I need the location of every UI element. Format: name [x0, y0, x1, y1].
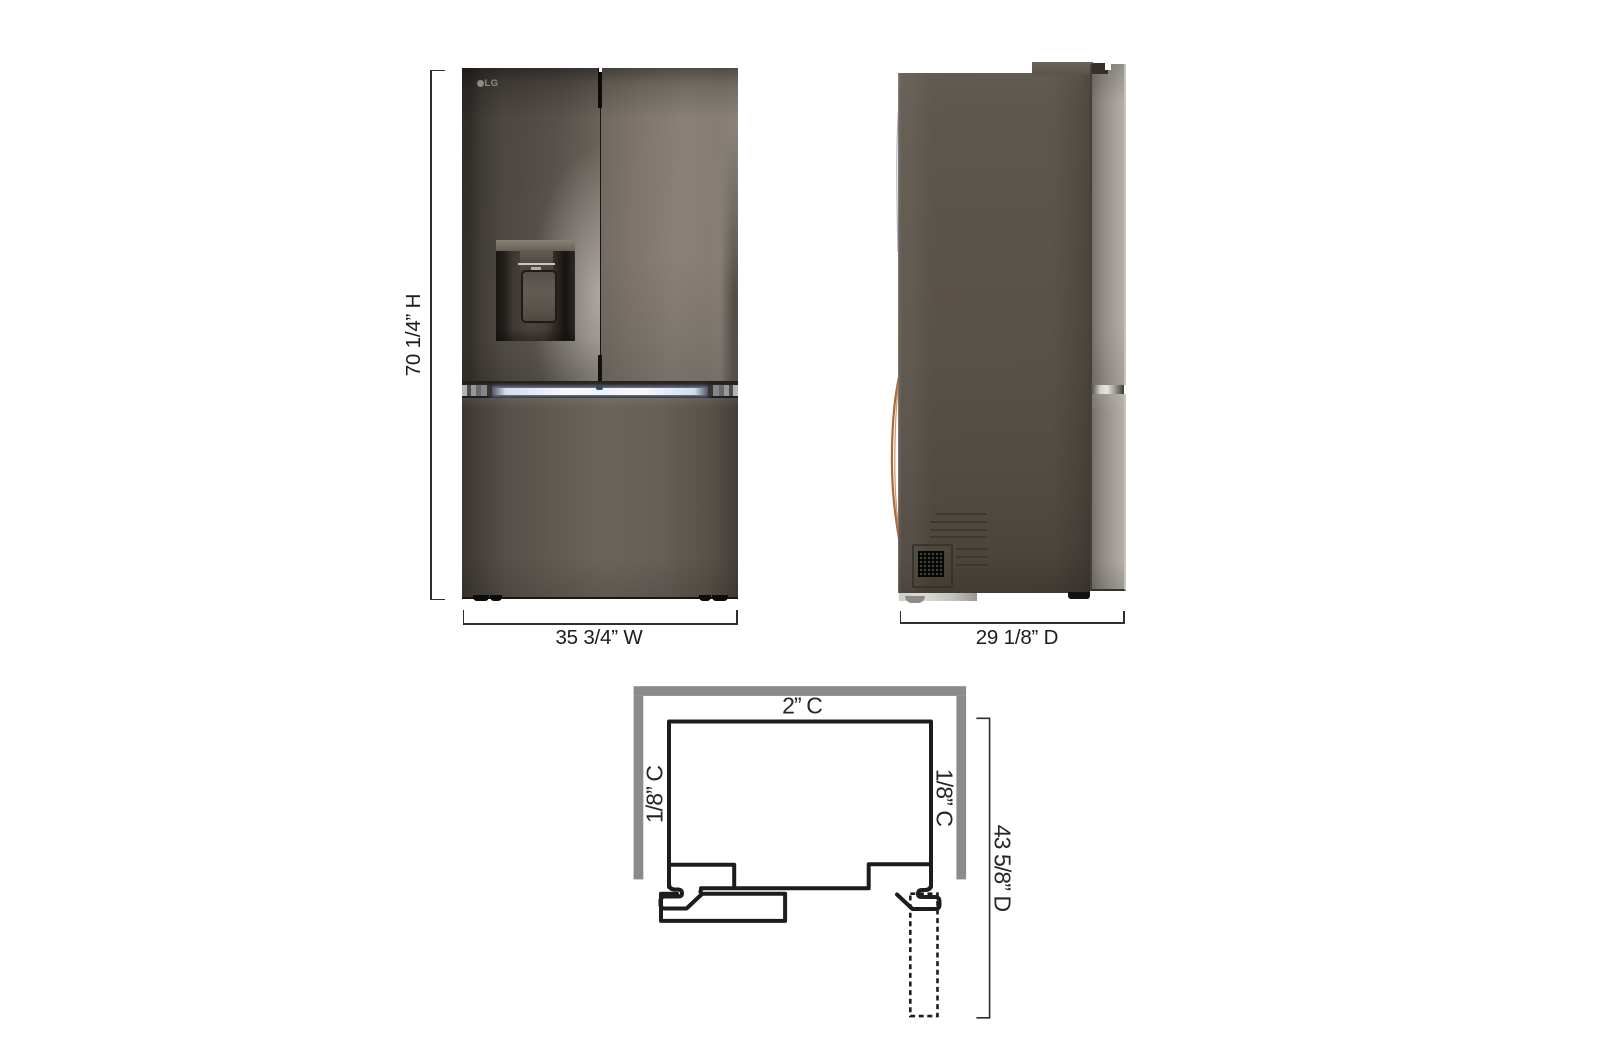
- svg-text:43 5/8” D: 43 5/8” D: [990, 825, 1016, 912]
- svg-text:2” C: 2” C: [782, 693, 822, 719]
- svg-text:1/8” C: 1/8” C: [932, 769, 958, 827]
- svg-text:1/8” C: 1/8” C: [642, 766, 668, 824]
